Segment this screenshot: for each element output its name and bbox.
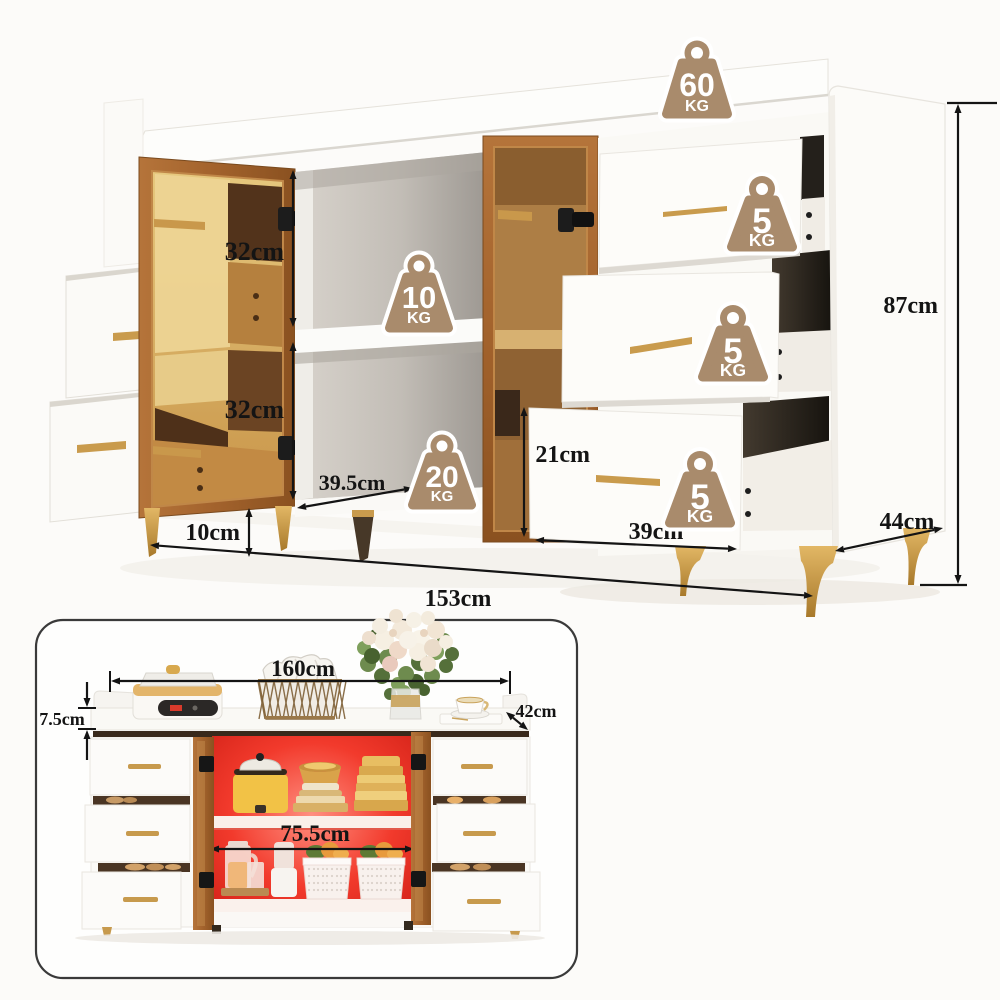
svg-text:KG: KG bbox=[431, 488, 454, 505]
svg-text:KG: KG bbox=[749, 230, 775, 250]
svg-text:7.5cm: 7.5cm bbox=[39, 709, 84, 729]
svg-text:32cm: 32cm bbox=[225, 237, 285, 266]
svg-text:42cm: 42cm bbox=[516, 701, 557, 721]
svg-text:153cm: 153cm bbox=[425, 586, 492, 612]
svg-text:KG: KG bbox=[407, 310, 431, 327]
svg-text:KG: KG bbox=[720, 360, 746, 380]
svg-text:KG: KG bbox=[687, 506, 713, 526]
svg-text:160cm: 160cm bbox=[271, 656, 335, 681]
svg-text:10cm: 10cm bbox=[185, 520, 240, 546]
svg-text:75.5cm: 75.5cm bbox=[280, 821, 350, 846]
svg-text:32cm: 32cm bbox=[225, 395, 285, 424]
svg-text:39.5cm: 39.5cm bbox=[319, 470, 386, 495]
svg-text:87cm: 87cm bbox=[883, 293, 938, 319]
svg-text:KG: KG bbox=[685, 98, 709, 115]
svg-text:21cm: 21cm bbox=[535, 442, 590, 468]
